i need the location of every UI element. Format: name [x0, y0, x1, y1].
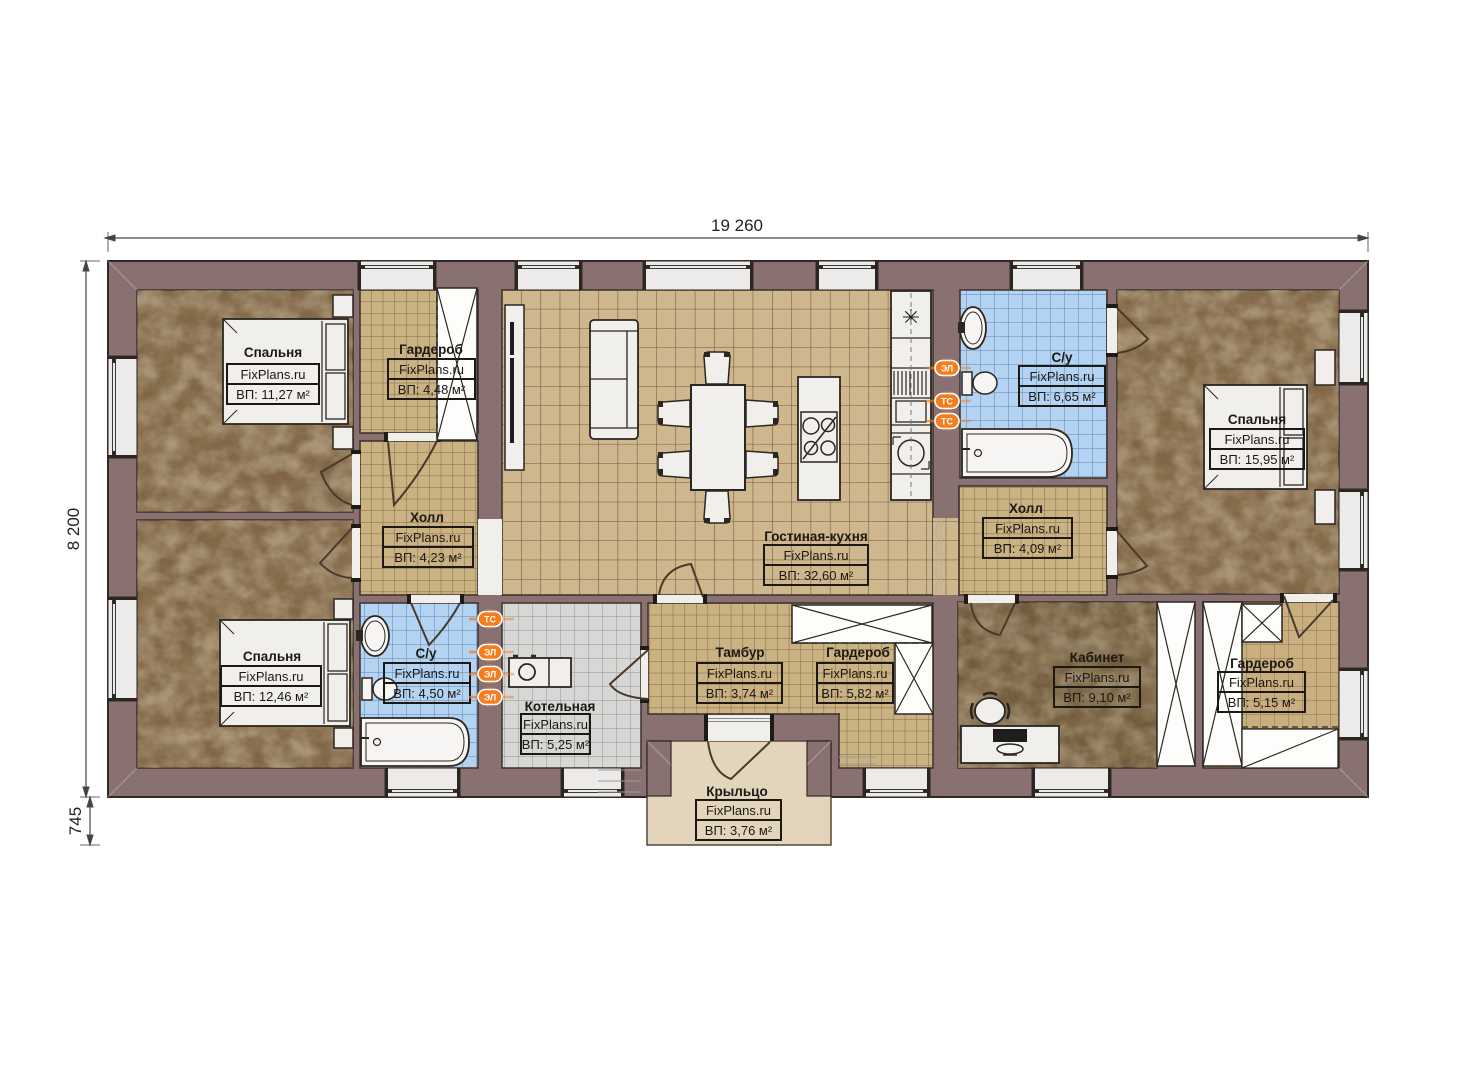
svg-text:Гардероб: Гардероб	[399, 342, 463, 357]
svg-text:Спальня: Спальня	[1228, 412, 1286, 427]
svg-text:Спальня: Спальня	[244, 345, 302, 360]
svg-text:✳: ✳	[902, 305, 920, 330]
svg-text:ЭЛ: ЭЛ	[941, 364, 953, 374]
svg-text:FixPlans.ru: FixPlans.ru	[240, 367, 305, 382]
svg-text:Холл: Холл	[410, 510, 444, 525]
svg-text:С/у: С/у	[415, 646, 437, 661]
svg-text:ВП: 5,25 м²: ВП: 5,25 м²	[522, 737, 590, 752]
svg-text:ТС: ТС	[941, 417, 953, 427]
svg-text:ВП: 3,76 м²: ВП: 3,76 м²	[705, 823, 773, 838]
svg-text:Кабинет: Кабинет	[1070, 650, 1125, 665]
svg-text:Спальня: Спальня	[243, 649, 301, 664]
svg-text:ЭЛ: ЭЛ	[484, 648, 496, 658]
svg-text:ВП: 32,60 м²: ВП: 32,60 м²	[779, 568, 854, 583]
svg-text:FixPlans.ru: FixPlans.ru	[706, 803, 771, 818]
svg-text:Котельная: Котельная	[525, 699, 596, 714]
svg-text:ТС: ТС	[941, 397, 953, 407]
svg-text:745: 745	[66, 807, 85, 835]
svg-text:ВП: 12,46 м²: ВП: 12,46 м²	[234, 689, 309, 704]
svg-text:FixPlans.ru: FixPlans.ru	[1229, 675, 1294, 690]
svg-text:ЭЛ: ЭЛ	[484, 670, 496, 680]
svg-text:Гардероб: Гардероб	[826, 645, 890, 660]
svg-text:FixPlans.ru: FixPlans.ru	[1029, 369, 1094, 384]
svg-text:ЭЛ: ЭЛ	[484, 693, 496, 703]
svg-text:19 260: 19 260	[711, 216, 763, 235]
svg-text:FixPlans.ru: FixPlans.ru	[394, 666, 459, 681]
svg-text:FixPlans.ru: FixPlans.ru	[238, 669, 303, 684]
svg-text:FixPlans.ru: FixPlans.ru	[523, 717, 588, 732]
svg-text:ВП: 3,74 м²: ВП: 3,74 м²	[706, 686, 774, 701]
svg-text:Холл: Холл	[1009, 501, 1043, 516]
svg-text:FixPlans.ru: FixPlans.ru	[1224, 432, 1289, 447]
svg-text:ВП: 11,27 м²: ВП: 11,27 м²	[236, 387, 310, 402]
svg-text:ВП: 4,09 м²: ВП: 4,09 м²	[994, 541, 1062, 556]
svg-text:FixPlans.ru: FixPlans.ru	[707, 666, 772, 681]
svg-text:ВП: 9,10 м²: ВП: 9,10 м²	[1063, 690, 1131, 705]
svg-text:FixPlans.ru: FixPlans.ru	[995, 521, 1060, 536]
svg-text:FixPlans.ru: FixPlans.ru	[395, 530, 460, 545]
svg-text:ВП: 15,95 м²: ВП: 15,95 м²	[1220, 452, 1295, 467]
svg-text:Тамбур: Тамбур	[716, 645, 765, 660]
svg-text:ВП: 6,65 м²: ВП: 6,65 м²	[1028, 389, 1096, 404]
svg-text:Гостиная-кухня: Гостиная-кухня	[764, 529, 867, 544]
svg-text:FixPlans.ru: FixPlans.ru	[1064, 670, 1129, 685]
svg-text:FixPlans.ru: FixPlans.ru	[822, 666, 887, 681]
svg-text:С/у: С/у	[1051, 350, 1073, 365]
svg-text:ВП: 5,82 м²: ВП: 5,82 м²	[821, 686, 889, 701]
svg-text:ВП: 5,15 м²: ВП: 5,15 м²	[1228, 695, 1296, 710]
svg-text:ВП: 4,48 м²: ВП: 4,48 м²	[398, 382, 466, 397]
svg-text:FixPlans.ru: FixPlans.ru	[399, 362, 464, 377]
svg-text:ВП: 4,23 м²: ВП: 4,23 м²	[394, 550, 462, 565]
svg-text:Крыльцо: Крыльцо	[706, 784, 767, 799]
svg-text:8 200: 8 200	[64, 508, 83, 551]
svg-text:FixPlans.ru: FixPlans.ru	[783, 548, 848, 563]
svg-text:Гардероб: Гардероб	[1230, 656, 1294, 671]
svg-text:ТС: ТС	[484, 615, 496, 625]
svg-text:ВП: 4,50 м²: ВП: 4,50 м²	[393, 686, 461, 701]
